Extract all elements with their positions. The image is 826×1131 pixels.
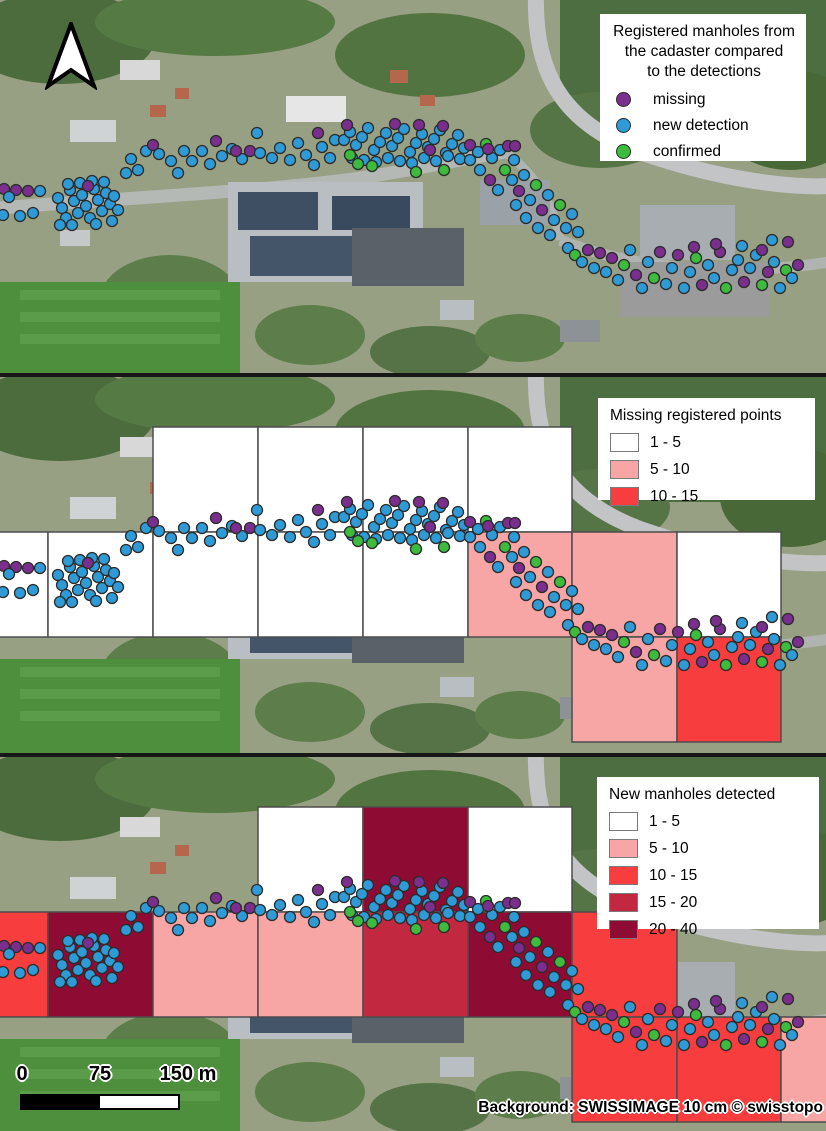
legend-item-20-40: 20 - 40 bbox=[609, 920, 809, 939]
legend-item-10-15: 10 - 15 bbox=[610, 487, 805, 506]
bucket-1-5-swatch bbox=[610, 433, 639, 452]
legend-item-5-10: 5 - 10 bbox=[610, 460, 805, 479]
legend-item-15-20: 15 - 20 bbox=[609, 893, 809, 912]
legend-item-missing: missing bbox=[612, 91, 796, 108]
scale-label-0: 0 bbox=[16, 1063, 27, 1086]
scale-bar bbox=[20, 1094, 180, 1110]
map-attribution: Background: SWISSIMAGE 10 cm © swisstopo bbox=[478, 1099, 823, 1117]
legend-item-1-5: 1 - 5 bbox=[610, 433, 805, 452]
new-detection-point-icon bbox=[616, 118, 631, 133]
legend-missing-registered: Missing registered points 1 - 5 5 - 10 1… bbox=[598, 398, 815, 500]
confirmed-point-icon bbox=[616, 144, 631, 159]
legend-title: Registered manholes from the cadaster co… bbox=[612, 22, 796, 82]
map-panel-comparison[interactable]: Registered manholes from the cadaster co… bbox=[0, 0, 826, 373]
map-panel-new-manholes[interactable]: New manholes detected 1 - 5 5 - 10 10 - … bbox=[0, 757, 826, 1131]
legend-title: New manholes detected bbox=[609, 785, 809, 804]
legend-item-new-detection: new detection bbox=[612, 117, 796, 134]
legend-item-5-10: 5 - 10 bbox=[609, 839, 809, 858]
bucket-20-40-swatch bbox=[609, 920, 638, 939]
bucket-5-10-swatch bbox=[609, 839, 638, 858]
map-figure: Registered manholes from the cadaster co… bbox=[0, 0, 826, 1131]
legend-new-manholes: New manholes detected 1 - 5 5 - 10 10 - … bbox=[597, 777, 819, 929]
bucket-15-20-swatch bbox=[609, 893, 638, 912]
legend-item-confirmed: confirmed bbox=[612, 143, 796, 160]
legend-title: Missing registered points bbox=[610, 406, 805, 425]
bucket-5-10-swatch bbox=[610, 460, 639, 479]
north-arrow-icon bbox=[45, 22, 97, 90]
bucket-1-5-swatch bbox=[609, 812, 638, 831]
bucket-10-15-swatch bbox=[610, 487, 639, 506]
map-panel-missing-registered[interactable]: Missing registered points 1 - 5 5 - 10 1… bbox=[0, 377, 826, 753]
scale-label-75: 75 bbox=[89, 1063, 111, 1086]
legend-registered-manholes: Registered manholes from the cadaster co… bbox=[600, 14, 806, 161]
missing-point-icon bbox=[616, 92, 631, 107]
legend-item-1-5: 1 - 5 bbox=[609, 812, 809, 831]
scale-label-150m: 150 m bbox=[160, 1063, 217, 1086]
scale-bar-black-segment bbox=[22, 1096, 100, 1108]
legend-item-10-15: 10 - 15 bbox=[609, 866, 809, 885]
bucket-10-15-swatch bbox=[609, 866, 638, 885]
